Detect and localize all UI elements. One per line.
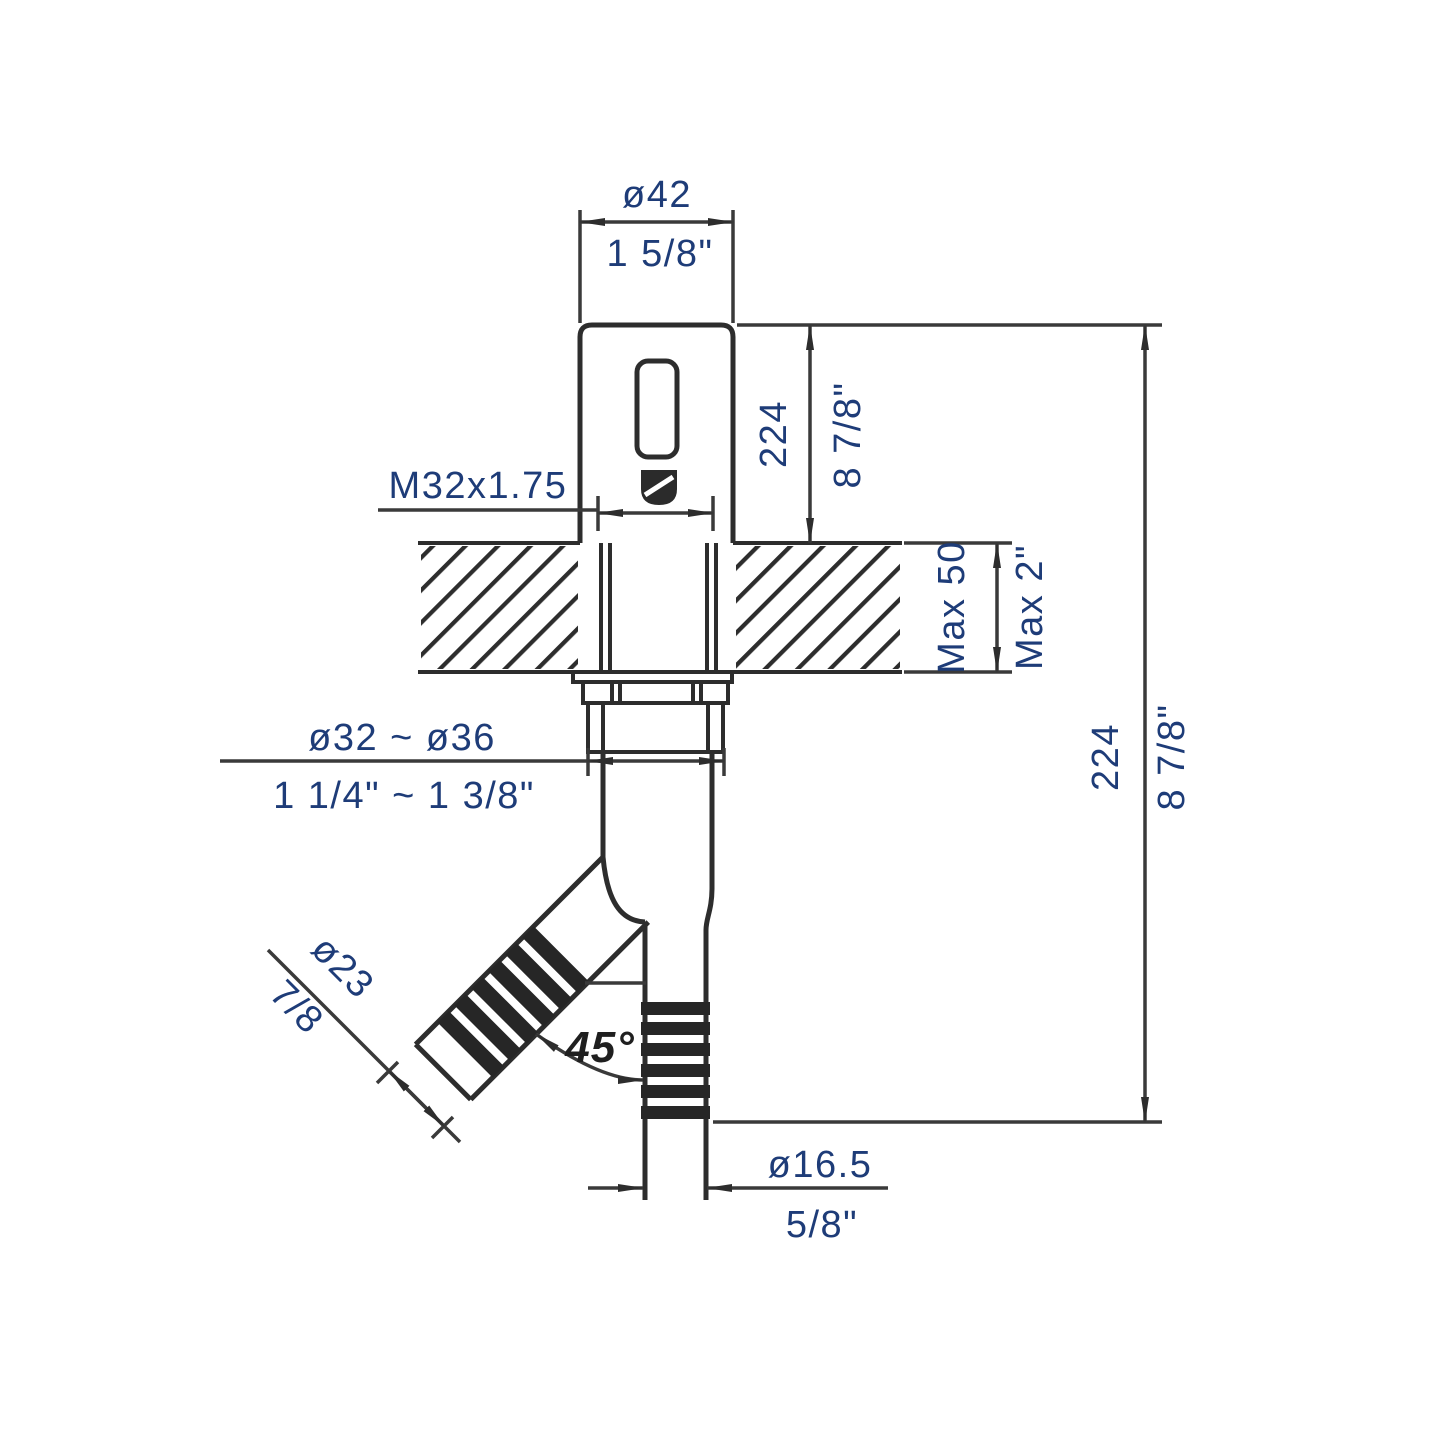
drawing-canvas: ø42 1 5/8" M32x1.75 224 8 7/8" Max 50 Ma… <box>0 0 1445 1445</box>
label-top-diameter-mm: ø42 <box>622 174 692 216</box>
label-body-height-mm: 224 <box>753 400 795 468</box>
countertop-hatch-right <box>736 546 900 669</box>
brand-logo-icon <box>641 470 677 505</box>
label-top-diameter-in: 1 5/8" <box>606 233 713 275</box>
collar <box>588 703 723 752</box>
label-deck-thickness-in: Max 2" <box>1009 544 1051 670</box>
pipe-ribs <box>641 1002 710 1119</box>
label-shank-range-mm: ø32 ~ ø36 <box>308 717 496 759</box>
label-outlet-diameter-mm: ø16.5 <box>768 1144 873 1186</box>
label-spout-angle: 45° <box>564 1023 635 1072</box>
dim-spout-line <box>389 1071 444 1126</box>
label-shank-range-in: 1 1/4" ~ 1 3/8" <box>273 775 535 817</box>
threaded-shank <box>601 543 716 672</box>
label-body-height-in: 8 7/8" <box>827 381 869 488</box>
tailpiece <box>603 752 712 888</box>
mounting-nut <box>583 682 728 703</box>
faucet-body <box>580 325 733 543</box>
label-overall-height-mm: 224 <box>1085 723 1127 791</box>
sensor-window <box>637 361 677 457</box>
label-deck-thickness-mm: Max 50 <box>931 540 973 674</box>
label-overall-height-in: 8 7/8" <box>1151 703 1193 810</box>
label-spout-diameter-in: 7/8 <box>261 972 331 1042</box>
label-outlet-diameter-in: 5/8" <box>786 1204 858 1246</box>
countertop-hatch-left <box>421 546 578 669</box>
technical-drawing: ø42 1 5/8" M32x1.75 224 8 7/8" Max 50 Ma… <box>0 0 1445 1445</box>
label-thread-spec: M32x1.75 <box>389 465 568 507</box>
